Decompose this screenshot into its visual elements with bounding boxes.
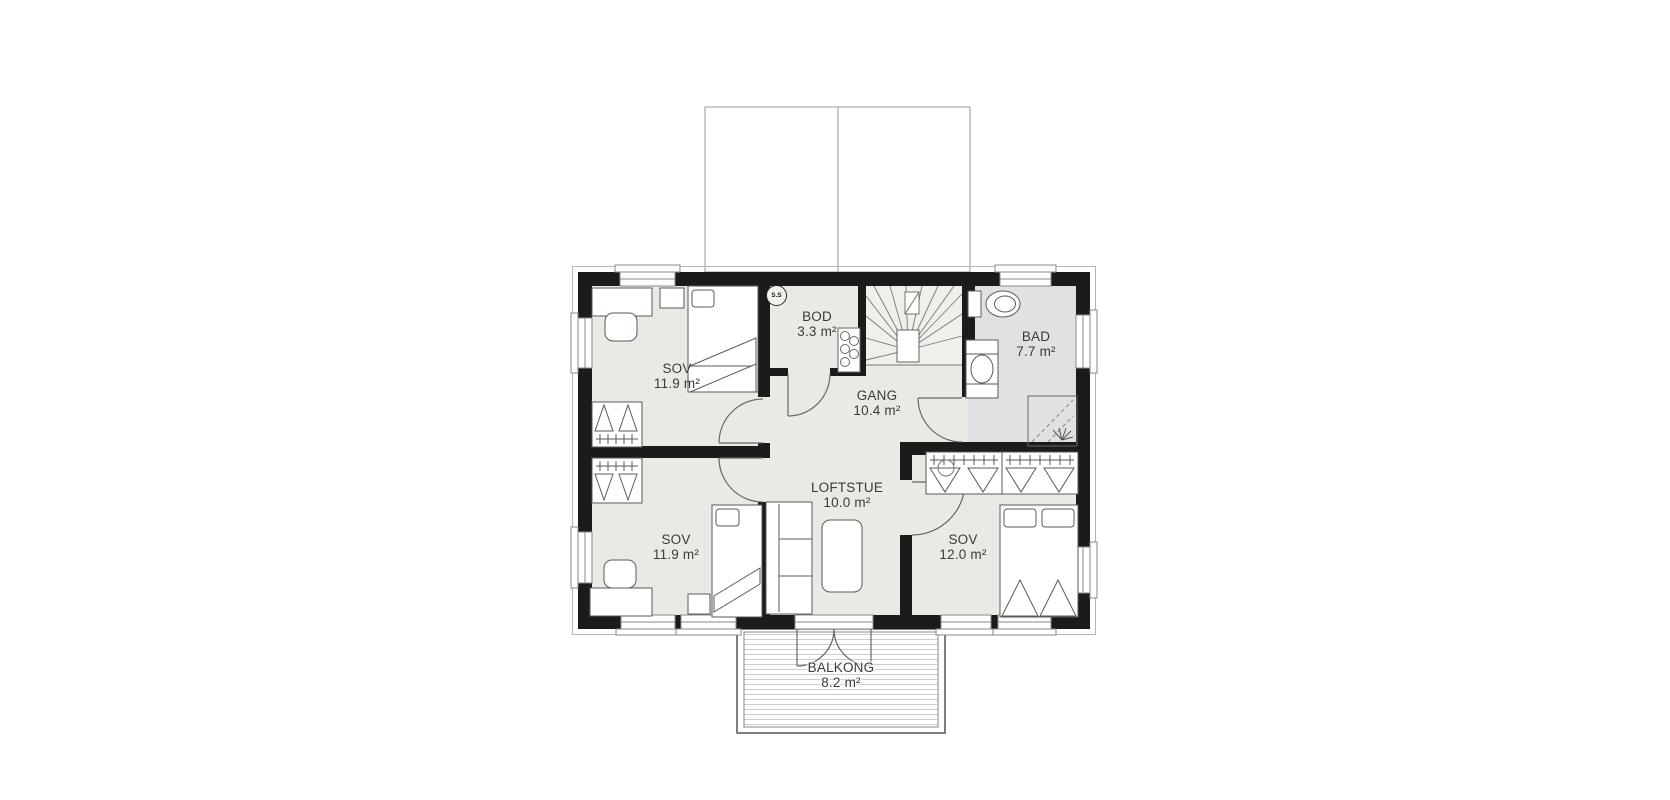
window: [936, 615, 996, 635]
room-label-loftstue: LOFTSTUE 10.0 m²: [772, 481, 922, 510]
wardrobe-icon: [592, 402, 642, 447]
room-label-bod: BOD 3.3 m²: [742, 310, 892, 339]
window: [995, 265, 1056, 286]
window: [616, 615, 680, 635]
coffee-table-icon: [822, 520, 862, 592]
room-area: 3.3 m²: [742, 325, 892, 340]
wardrobe-icon: [592, 458, 642, 503]
room-area: 7.7 m²: [961, 345, 1111, 360]
nightstand-icon: [688, 594, 710, 614]
room-name: SOV: [601, 533, 751, 548]
chair-icon: [605, 313, 637, 341]
window: [676, 615, 741, 635]
room-name: SOV: [888, 533, 1038, 548]
wardrobe-icon: [1002, 452, 1078, 494]
room-label-sov-2: SOV 11.9 m²: [601, 533, 751, 562]
room-area: 11.9 m²: [602, 377, 752, 392]
window: [1076, 542, 1097, 598]
room-area: 12.0 m²: [888, 548, 1038, 563]
wardrobe-icon: [926, 452, 1002, 494]
sofa-icon: [766, 502, 812, 614]
room-label-balkong: BALKONG 8.2 m²: [766, 661, 916, 690]
room-name: GANG: [802, 389, 952, 404]
chair-icon: [604, 560, 636, 588]
room-area: 11.9 m²: [601, 548, 751, 563]
room-area: 10.0 m²: [772, 496, 922, 511]
desk-icon: [592, 288, 652, 316]
room-label-sov-1: SOV 11.9 m²: [602, 362, 752, 391]
smoke-detector-marker: S.S: [766, 285, 787, 306]
room-name: BOD: [742, 310, 892, 325]
balcony-door-opening: [795, 615, 873, 629]
room-label-sov-3: SOV 12.0 m²: [888, 533, 1038, 562]
smoke-detector-label: S.S: [771, 292, 781, 299]
room-name: BALKONG: [766, 661, 916, 676]
room-name: LOFTSTUE: [772, 481, 922, 496]
room-name: BAD: [961, 330, 1111, 345]
window: [615, 265, 680, 286]
roof-outline: [705, 107, 970, 272]
floorplan-canvas: SOV 11.9 m² BOD 3.3 m² BAD 7.7 m² GANG 1…: [0, 0, 1670, 800]
window: [993, 615, 1056, 635]
window: [571, 313, 592, 373]
room-area: 10.4 m²: [802, 404, 952, 419]
nightstand-icon: [660, 288, 684, 308]
room-label-bad: BAD 7.7 m²: [961, 330, 1111, 359]
room-area: 8.2 m²: [766, 676, 916, 691]
toilet-icon: [968, 291, 1020, 317]
room-label-gang: GANG 10.4 m²: [802, 389, 952, 418]
window: [571, 527, 592, 588]
desk-icon: [590, 588, 652, 616]
room-name: SOV: [602, 362, 752, 377]
